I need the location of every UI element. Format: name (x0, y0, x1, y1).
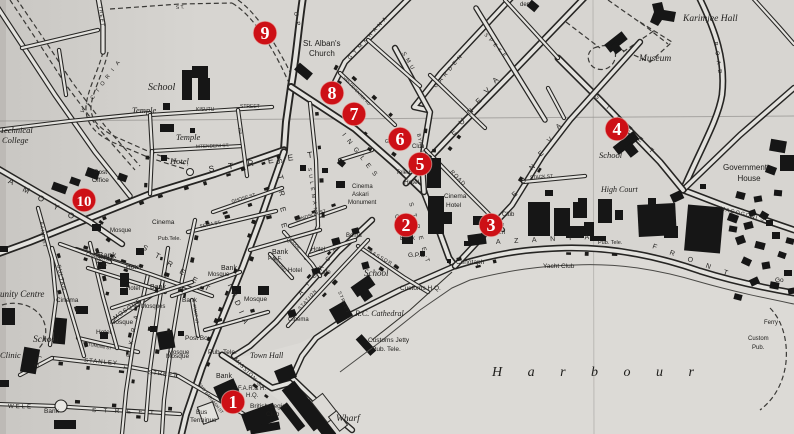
svg-text:Club: Club (502, 212, 515, 218)
svg-text:7: 7 (350, 104, 359, 124)
svg-text:Town Hall: Town Hall (250, 351, 284, 360)
svg-text:Office: Office (92, 177, 109, 184)
svg-text:Cinema: Cinema (352, 184, 373, 190)
svg-text:Post: Post (94, 169, 107, 176)
svg-text:Mosque: Mosque (244, 296, 268, 303)
svg-text:STREET: STREET (240, 104, 260, 110)
svg-text:6: 6 (396, 129, 405, 149)
svg-text:Boma: Boma (346, 233, 362, 239)
svg-text:M: M (136, 302, 143, 308)
svg-text:Hotel: Hotel (126, 264, 142, 271)
svg-text:Mosque: Mosque (208, 272, 230, 278)
svg-text:R.C. Cathedral: R.C. Cathedral (354, 309, 404, 318)
svg-text:KISUTU: KISUTU (196, 107, 215, 113)
svg-text:Bank: Bank (44, 408, 60, 415)
svg-text:College: College (2, 135, 29, 145)
svg-text:Hotel: Hotel (446, 202, 462, 209)
svg-text:British Legion: British Legion (250, 403, 290, 410)
svg-text:2: 2 (402, 215, 411, 235)
svg-text:School: School (599, 150, 623, 160)
svg-text:S T.: S T. (176, 4, 185, 11)
svg-text:Terminus: Terminus (190, 417, 217, 424)
svg-text:School: School (364, 268, 389, 278)
svg-text:Monument: Monument (348, 200, 377, 206)
svg-text:Mosque: Mosque (110, 228, 132, 234)
svg-text:H.Q.: H.Q. (246, 393, 259, 399)
svg-text:5: 5 (416, 154, 425, 174)
svg-text:School: School (148, 82, 175, 93)
svg-text:8: 8 (328, 83, 337, 103)
svg-text:Yacht Club: Yacht Club (543, 263, 575, 270)
svg-text:unity Centre: unity Centre (0, 289, 44, 299)
svg-text:3: 3 (487, 215, 496, 235)
svg-text:Cinema: Cinema (56, 297, 79, 304)
svg-text:MTENDENI ST.: MTENDENI ST. (196, 143, 230, 150)
svg-text:Temple: Temple (132, 105, 156, 115)
svg-text:Pub.: Pub. (752, 345, 765, 351)
svg-text:Bank: Bank (150, 284, 166, 291)
svg-text:Custom: Custom (748, 336, 769, 342)
svg-text:Customs Jetty: Customs Jetty (368, 337, 410, 344)
svg-text:Hotel: Hotel (126, 286, 140, 292)
svg-text:9: 9 (261, 23, 270, 43)
svg-text:Temple: Temple (176, 132, 200, 142)
svg-text:Pub. Tele.: Pub. Tele. (598, 240, 623, 246)
svg-text:Cinema: Cinema (444, 193, 467, 200)
svg-text:Askari: Askari (352, 192, 369, 198)
svg-text:Customs H.Q.: Customs H.Q. (400, 285, 441, 292)
svg-text:4: 4 (613, 119, 622, 139)
svg-text:Wharf: Wharf (336, 413, 361, 424)
svg-text:Bank: Bank (221, 265, 237, 272)
svg-text:Cafe: Cafe (318, 270, 331, 276)
svg-text:H a r b o u r: H a r b o u r (491, 365, 705, 380)
svg-text:School: School (33, 335, 59, 345)
svg-text:WELE: WELE (8, 404, 33, 410)
svg-text:Hotel: Hotel (288, 268, 302, 274)
svg-text:Post Box: Post Box (185, 335, 212, 342)
svg-text:Mosques: Mosques (141, 304, 165, 310)
svg-text:House: House (737, 174, 761, 183)
svg-text:Pub.Tele.: Pub.Tele. (158, 236, 181, 242)
svg-text:St. Alban's: St. Alban's (303, 39, 341, 48)
svg-text:Cenotaph: Cenotaph (456, 259, 485, 266)
svg-text:Church: Church (309, 49, 335, 58)
svg-text:Museum: Museum (638, 54, 671, 64)
svg-text:Pub. Tele.: Pub. Tele. (208, 349, 237, 356)
svg-text:Club: Club (266, 411, 280, 418)
svg-text:Mosque: Mosque (168, 350, 190, 356)
svg-text:dens: dens (520, 2, 533, 8)
svg-text:Pub. Tele.: Pub. Tele. (372, 346, 401, 353)
svg-text:Cinema: Cinema (288, 317, 309, 323)
svg-text:Go: Go (775, 277, 784, 284)
svg-text:10: 10 (77, 194, 92, 210)
svg-text:Hotel: Hotel (311, 247, 325, 253)
svg-text:Mosque: Mosque (110, 319, 134, 326)
svg-text:Government: Government (723, 163, 768, 172)
svg-text:1: 1 (229, 392, 238, 412)
svg-text:Technical: Technical (0, 125, 33, 135)
svg-text:Ferry: Ferry (764, 320, 778, 326)
svg-text:Hotel: Hotel (404, 179, 420, 186)
svg-text:Hotel: Hotel (96, 329, 112, 336)
svg-text:Bus: Bus (196, 409, 208, 416)
svg-text:Clinic: Clinic (0, 350, 21, 360)
svg-text:Karimjee Hall: Karimjee Hall (682, 14, 738, 24)
svg-text:Cinema: Cinema (152, 219, 175, 226)
svg-text:Hotel: Hotel (169, 156, 190, 166)
svg-text:High Court: High Court (600, 185, 638, 194)
svg-text:Bank: Bank (216, 373, 232, 380)
